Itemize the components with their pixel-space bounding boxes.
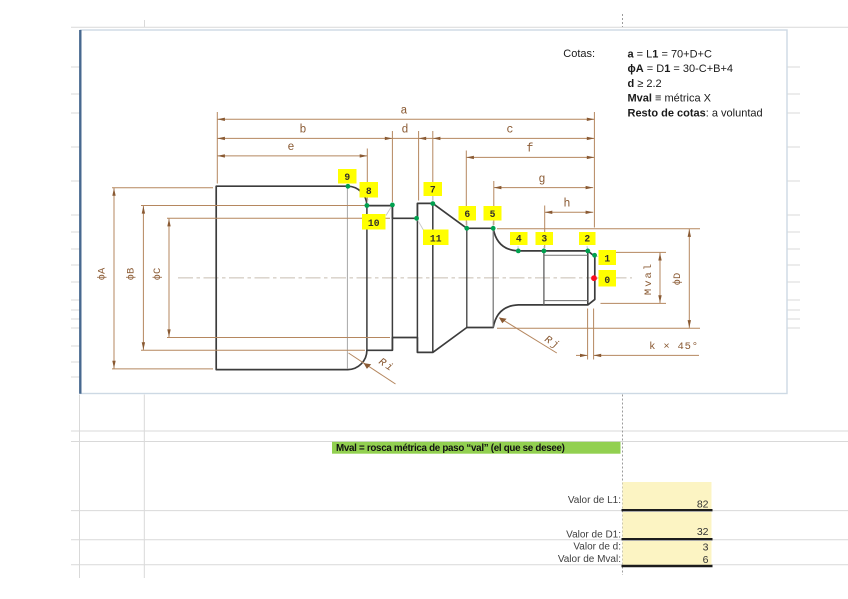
svg-text:h: h	[564, 198, 571, 211]
svg-text:3: 3	[541, 234, 547, 245]
svg-text:ϕC: ϕC	[152, 268, 164, 281]
svg-text:5: 5	[490, 209, 496, 220]
svg-text:Valor de d:: Valor de d:	[573, 542, 621, 553]
svg-text:3: 3	[703, 542, 709, 554]
svg-text:32: 32	[697, 526, 709, 538]
svg-text:Mval ≡ métrica X: Mval ≡ métrica X	[628, 93, 712, 105]
svg-text:10: 10	[368, 218, 380, 229]
svg-text:a: a	[401, 105, 408, 118]
svg-text:k × 45°: k × 45°	[649, 341, 699, 353]
svg-text:ϕA: ϕA	[97, 267, 109, 280]
svg-text:Resto de cotas: a voluntad: Resto de cotas: a voluntad	[628, 107, 763, 119]
svg-text:Cotas:: Cotas:	[563, 48, 595, 60]
svg-text:a = L1 = 70+D+C: a = L1 = 70+D+C	[628, 49, 712, 61]
svg-text:ϕD: ϕD	[672, 273, 684, 286]
svg-text:2: 2	[584, 234, 590, 245]
svg-text:11: 11	[430, 234, 442, 245]
svg-text:7: 7	[430, 185, 436, 196]
svg-text:1: 1	[604, 254, 610, 265]
svg-text:4: 4	[516, 234, 522, 245]
svg-text:b: b	[300, 124, 307, 137]
svg-text:0: 0	[604, 275, 610, 286]
svg-text:6: 6	[464, 209, 470, 220]
svg-text:d ≥ 2.2: d ≥ 2.2	[628, 78, 662, 90]
svg-text:ϕA = D1 = 30-C+B+4: ϕA = D1 = 30-C+B+4	[628, 63, 734, 75]
svg-text:c: c	[507, 124, 514, 137]
svg-text:Mval = rosca métrica de paso “: Mval = rosca métrica de paso “val” (el q…	[336, 443, 565, 454]
svg-text:ϕB: ϕB	[126, 268, 138, 281]
svg-text:g: g	[539, 173, 546, 186]
svg-text:Valor de L1:: Valor de L1:	[568, 495, 621, 506]
svg-text:f: f	[527, 143, 534, 156]
svg-text:e: e	[288, 141, 295, 154]
svg-text:Valor de D1:: Valor de D1:	[566, 530, 621, 541]
svg-text:6: 6	[703, 554, 709, 566]
svg-text:82: 82	[697, 499, 709, 511]
svg-text:d: d	[402, 124, 409, 137]
svg-text:9: 9	[344, 172, 350, 183]
svg-text:Valor de Mval:: Valor de Mval:	[558, 554, 621, 565]
svg-text:8: 8	[366, 186, 372, 197]
svg-text:Mval: Mval	[643, 262, 655, 295]
